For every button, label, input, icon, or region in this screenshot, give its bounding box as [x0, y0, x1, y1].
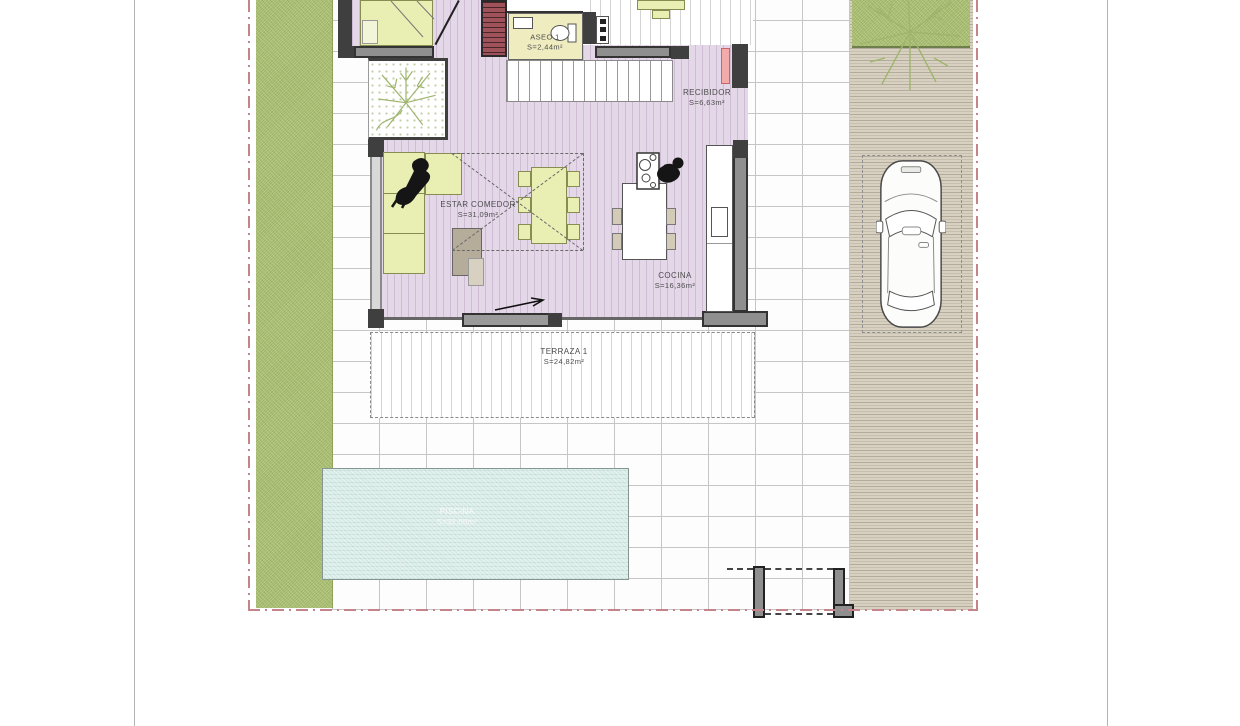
courtyard-patio	[368, 58, 448, 140]
window-left	[370, 157, 382, 309]
wall-living-corner-bottom	[368, 309, 384, 328]
stool	[666, 233, 676, 250]
wall-bottom-segment-1	[384, 317, 464, 320]
wall-bedroom-bottom-corner	[338, 46, 354, 58]
counter-divider	[707, 243, 732, 244]
room-name: COCINA	[655, 271, 696, 281]
zone-dash-bottom	[452, 250, 583, 251]
person-on-sofa	[386, 155, 436, 210]
zone-dash-right	[583, 153, 584, 250]
wall-living-corner-top	[368, 140, 384, 157]
tree-courtyard-icon	[369, 61, 443, 137]
gate-dash-top	[765, 568, 833, 570]
wall-recibidor-corner	[671, 46, 689, 59]
zone-dash-top	[452, 153, 583, 154]
room-name: ASEO 1	[527, 32, 563, 42]
room-label-piscina: PISCINA S=32,00m²	[437, 507, 478, 527]
floor-plan-canvas: PISCINA S=32,00m² TERRAZA 1 S=24,82m²	[0, 0, 1240, 726]
aseo-niche	[596, 16, 609, 44]
dining-chair	[567, 224, 580, 240]
room-area: S=6,63m²	[683, 98, 731, 108]
room-area: S=2,44m²	[527, 42, 563, 52]
niche-square	[600, 27, 606, 32]
room-label-terraza: TERRAZA 1 S=24,82m²	[540, 347, 587, 367]
tree-garden-icon	[848, 0, 972, 96]
niche-square	[600, 19, 606, 24]
stool	[612, 233, 622, 250]
room-name: RECIBIDOR	[683, 88, 731, 98]
stool	[612, 208, 622, 225]
wall-bedroom-left	[338, 0, 352, 46]
room-name: ESTAR COMEDOR	[440, 200, 515, 210]
room-area: S=32,00m²	[437, 517, 478, 527]
dining-chair	[518, 171, 531, 187]
door-swing-arrow	[493, 296, 547, 312]
page-edge-right	[1107, 0, 1108, 726]
wall-entry-column	[732, 44, 748, 88]
wall-aseo-right	[583, 12, 596, 44]
deck-table	[637, 0, 685, 10]
deck-table-leg	[652, 10, 670, 19]
sliding-door-leaf	[462, 313, 560, 327]
sofa-cushion-line	[384, 233, 424, 234]
wall-bottom-segment-2	[562, 317, 702, 320]
person-at-island	[654, 154, 688, 188]
room-name: TERRAZA 1	[540, 347, 587, 357]
terrace	[370, 332, 755, 418]
plot-boundary-left	[248, 0, 250, 610]
dining-chair	[567, 197, 580, 213]
dining-chair	[518, 224, 531, 240]
wall-bottom-right	[702, 311, 768, 327]
niche-square	[600, 36, 606, 41]
wall-kitchen-right	[733, 140, 748, 312]
gate-dash-top-left	[727, 568, 753, 570]
staircase-wide	[506, 60, 673, 102]
stool	[666, 208, 676, 225]
wall-bedroom-bottom	[354, 46, 434, 58]
bed-pillow	[362, 20, 378, 44]
wall-kitchen-right-corner	[733, 140, 748, 158]
staircase-red	[481, 0, 507, 57]
room-label-recibidor: RECIBIDOR S=6,63m²	[683, 88, 731, 108]
room-label-estar: ESTAR COMEDOR S=31,09m²	[440, 200, 515, 220]
car-top-view	[876, 158, 946, 330]
page-edge-left	[134, 0, 135, 726]
plot-boundary-bottom	[248, 609, 978, 611]
gate-wall-right-foot	[833, 604, 854, 618]
wall-recibidor-top	[595, 46, 671, 58]
room-name: PISCINA	[437, 507, 478, 517]
room-area: S=31,09m²	[440, 210, 515, 220]
side-table	[468, 258, 484, 286]
room-label-aseo: ASEO 1 S=2,44m²	[527, 32, 563, 52]
gate-dash-bottom	[765, 613, 833, 615]
aseo-sink	[513, 17, 533, 29]
room-area: S=16,36m²	[655, 281, 696, 291]
entry-door	[721, 48, 730, 84]
above-aseo-wall	[507, 0, 583, 13]
kitchen-island	[622, 183, 667, 260]
sliding-door-end-block	[548, 313, 562, 327]
dining-chair	[567, 171, 580, 187]
room-label-cocina: COCINA S=16,36m²	[655, 271, 696, 291]
plot-boundary-right	[976, 0, 978, 610]
kitchen-appliance	[711, 207, 728, 237]
room-area: S=24,82m²	[540, 357, 587, 367]
